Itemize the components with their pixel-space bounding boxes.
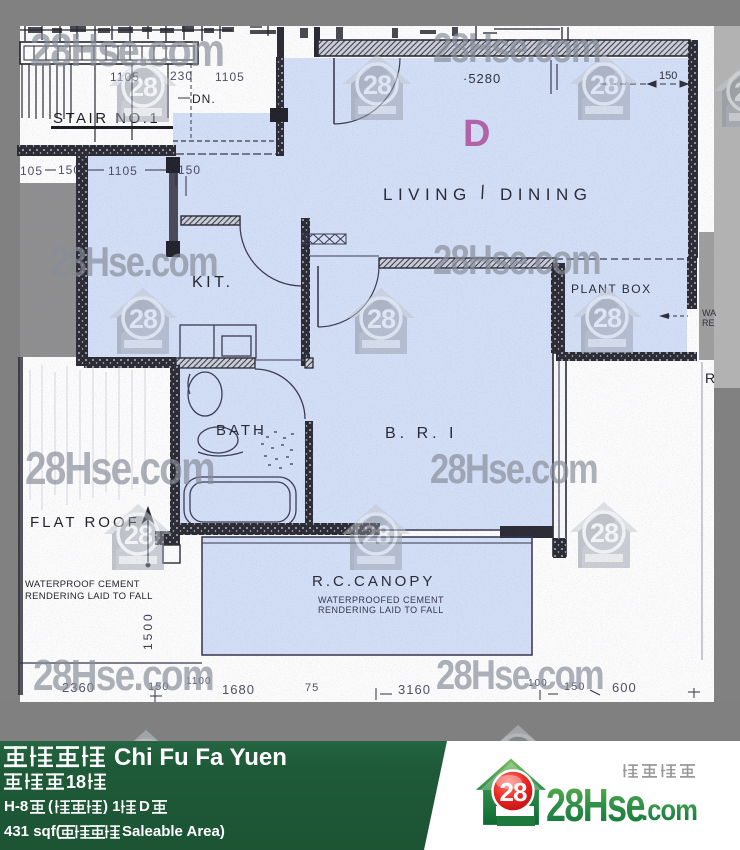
svg-text:18: 18 — [66, 772, 86, 792]
svg-text:D: D — [139, 798, 150, 815]
svg-text:) 1: ) 1 — [103, 798, 121, 815]
svg-text:28Hse: 28Hse — [546, 780, 645, 831]
svg-text:.com: .com — [641, 793, 697, 826]
svg-text:H-8: H-8 — [4, 798, 28, 815]
svg-text:Chi Fu Fa Yuen: Chi Fu Fa Yuen — [114, 744, 287, 771]
svg-text:431 sqf(: 431 sqf( — [4, 823, 61, 840]
svg-text:Saleable Area): Saleable Area) — [122, 823, 225, 840]
svg-text:(: ( — [48, 798, 53, 815]
svg-text:28: 28 — [500, 777, 527, 807]
